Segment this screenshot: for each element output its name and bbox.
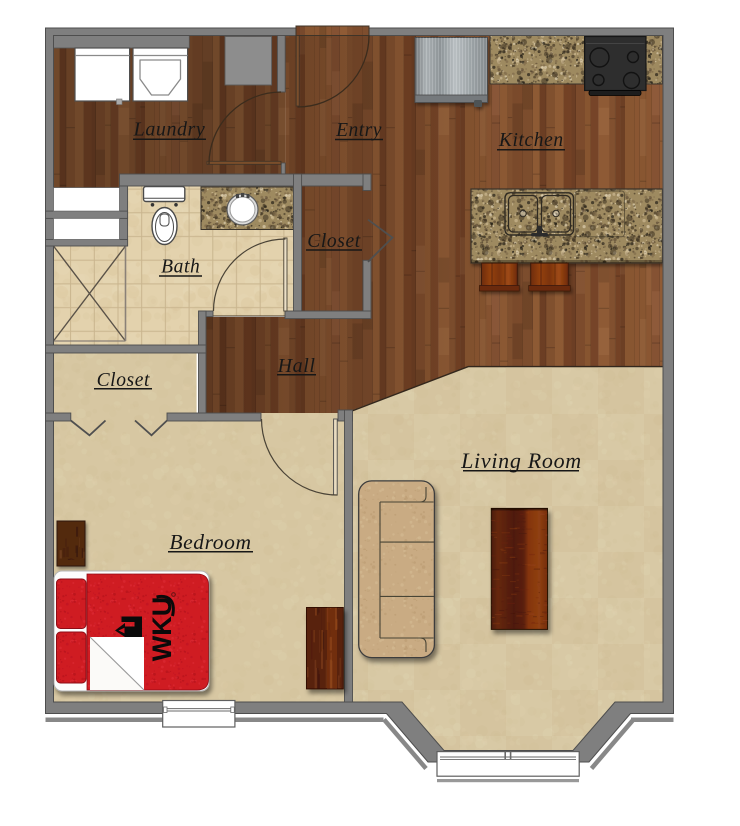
- svg-text:Hall: Hall: [277, 355, 316, 377]
- svg-text:Closet: Closet: [307, 231, 360, 252]
- svg-text:Kitchen: Kitchen: [498, 130, 564, 151]
- svg-text:Bath: Bath: [161, 257, 200, 278]
- svg-text:Entry: Entry: [335, 120, 382, 141]
- svg-text:Closet: Closet: [97, 370, 150, 391]
- svg-text:Bedroom: Bedroom: [169, 530, 251, 554]
- svg-text:Living Room: Living Room: [460, 448, 582, 473]
- svg-text:Laundry: Laundry: [133, 119, 206, 141]
